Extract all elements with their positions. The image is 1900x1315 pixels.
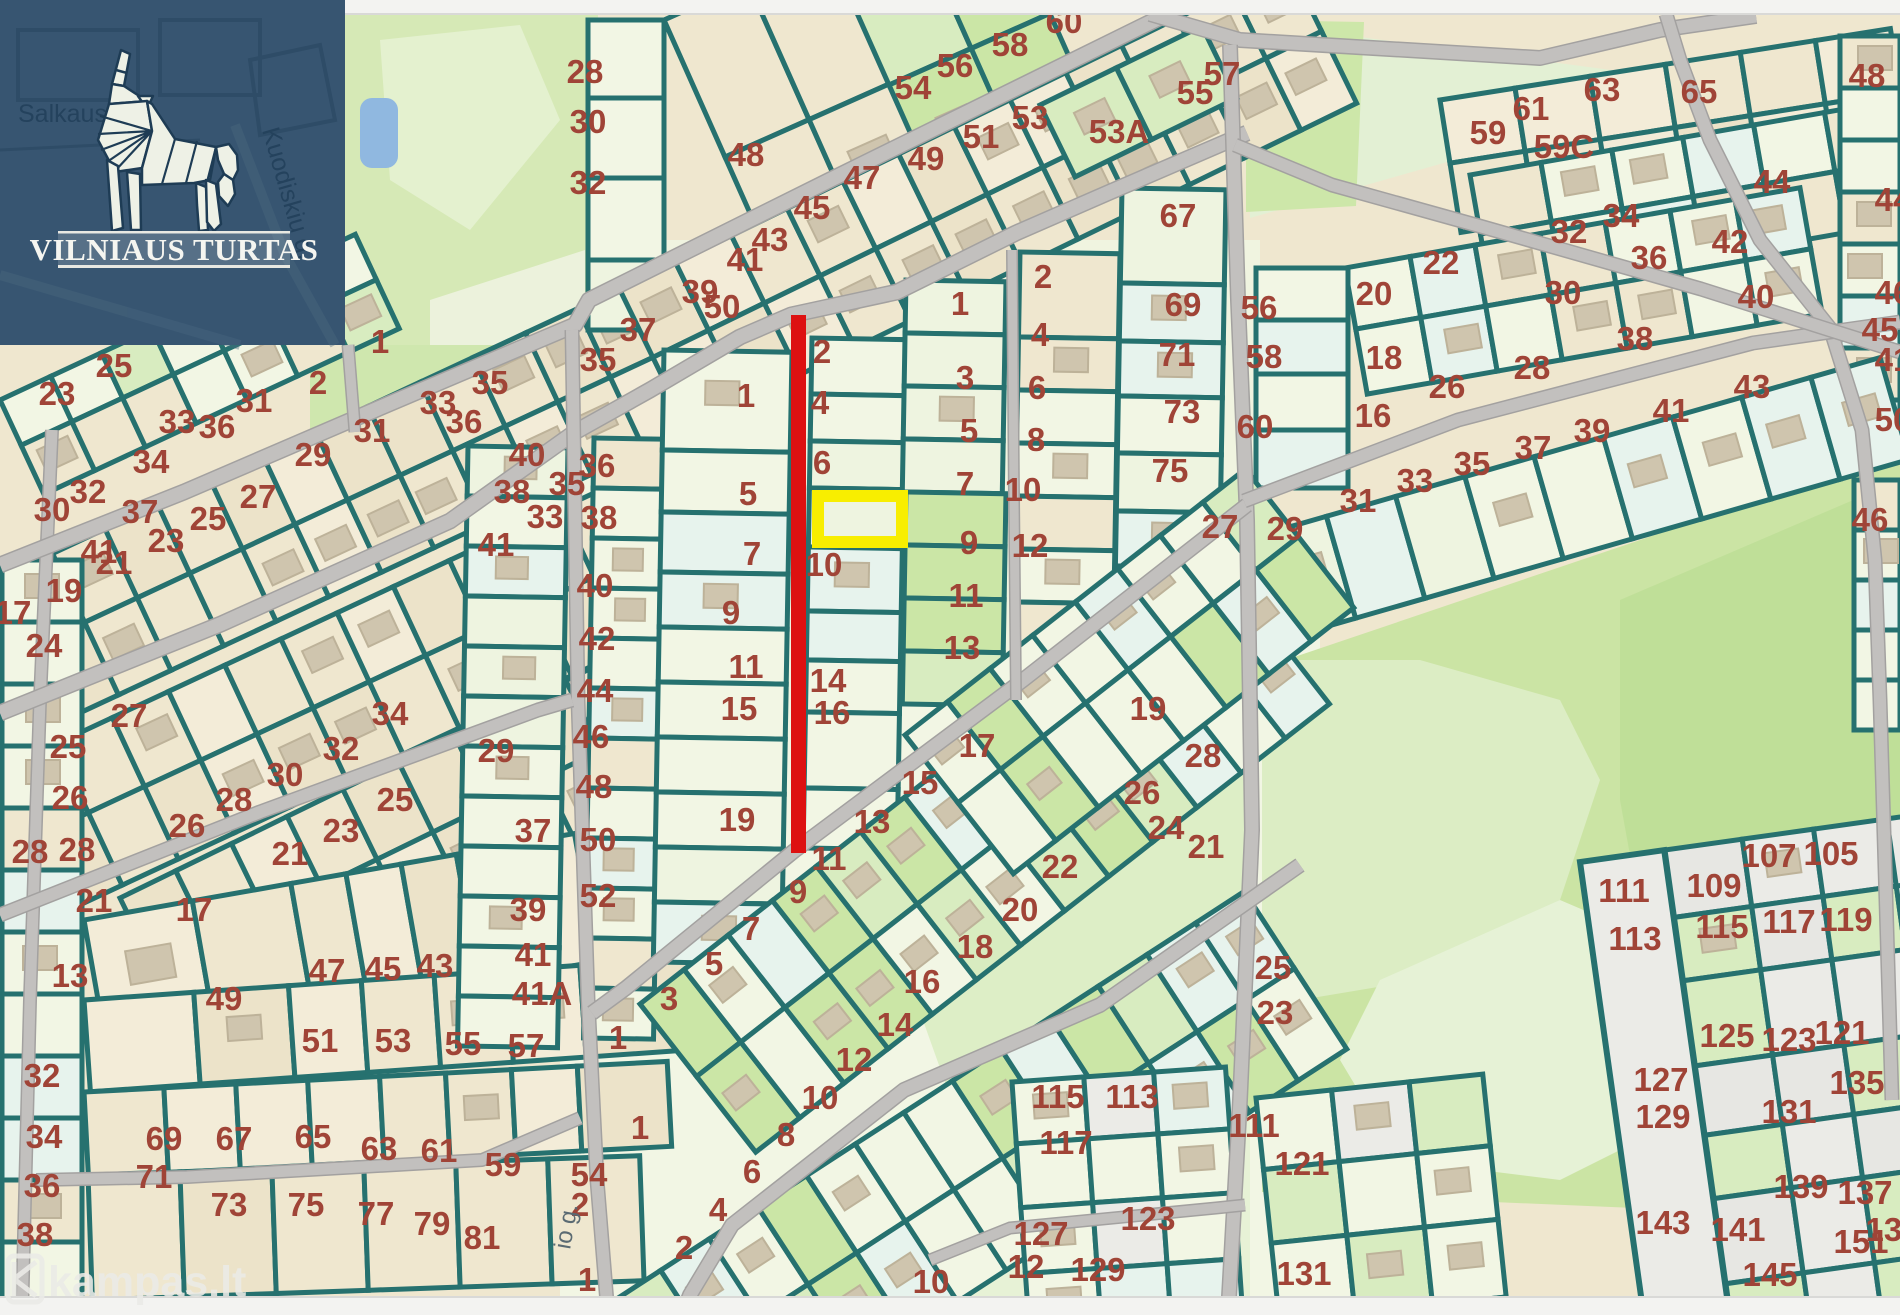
svg-text:137: 137 bbox=[1837, 1174, 1892, 1211]
svg-text:69: 69 bbox=[146, 1120, 183, 1157]
svg-text:111: 111 bbox=[1228, 1107, 1279, 1144]
svg-text:145: 145 bbox=[1742, 1256, 1797, 1293]
svg-text:135: 135 bbox=[1829, 1064, 1884, 1101]
svg-text:59: 59 bbox=[485, 1146, 522, 1183]
svg-text:36: 36 bbox=[1631, 239, 1668, 276]
svg-text:4: 4 bbox=[1031, 316, 1050, 353]
svg-text:25: 25 bbox=[96, 347, 133, 384]
svg-text:15: 15 bbox=[902, 764, 939, 801]
svg-text:46: 46 bbox=[1852, 501, 1889, 538]
svg-text:52: 52 bbox=[580, 877, 617, 914]
svg-text:105: 105 bbox=[1803, 835, 1858, 872]
svg-text:11: 11 bbox=[729, 648, 764, 685]
svg-text:34: 34 bbox=[26, 1118, 63, 1155]
svg-text:29: 29 bbox=[1267, 510, 1304, 547]
svg-text:28: 28 bbox=[1514, 349, 1551, 386]
svg-text:41: 41 bbox=[1653, 392, 1690, 429]
svg-text:58: 58 bbox=[992, 26, 1029, 63]
svg-text:47: 47 bbox=[309, 952, 346, 989]
svg-text:36: 36 bbox=[579, 447, 616, 484]
svg-text:44: 44 bbox=[1754, 163, 1791, 200]
svg-text:31: 31 bbox=[1340, 482, 1377, 519]
svg-text:17: 17 bbox=[959, 727, 996, 764]
svg-text:28: 28 bbox=[567, 53, 604, 90]
svg-text:51: 51 bbox=[302, 1022, 339, 1059]
svg-text:32: 32 bbox=[570, 164, 607, 201]
svg-text:41A: 41A bbox=[512, 975, 573, 1012]
svg-text:115: 115 bbox=[1031, 1078, 1084, 1115]
svg-text:25: 25 bbox=[1255, 949, 1292, 986]
svg-text:115: 115 bbox=[1695, 908, 1748, 945]
svg-text:11: 11 bbox=[949, 577, 984, 614]
svg-text:2: 2 bbox=[675, 1229, 693, 1266]
svg-text:19: 19 bbox=[719, 801, 756, 838]
svg-text:46: 46 bbox=[573, 718, 610, 755]
svg-text:30: 30 bbox=[570, 103, 607, 140]
svg-text:28: 28 bbox=[59, 831, 96, 868]
svg-text:12: 12 bbox=[836, 1041, 873, 1078]
svg-text:47: 47 bbox=[844, 159, 881, 196]
svg-text:2: 2 bbox=[309, 364, 327, 401]
svg-text:65: 65 bbox=[295, 1118, 332, 1155]
svg-text:67: 67 bbox=[1160, 197, 1197, 234]
svg-text:29: 29 bbox=[295, 436, 332, 473]
svg-text:40: 40 bbox=[1738, 278, 1775, 315]
svg-text:63: 63 bbox=[361, 1130, 398, 1167]
svg-text:8: 8 bbox=[777, 1116, 795, 1153]
svg-text:37: 37 bbox=[515, 812, 552, 849]
svg-text:35: 35 bbox=[472, 364, 509, 401]
svg-text:133: 133 bbox=[1865, 1211, 1900, 1248]
svg-text:50: 50 bbox=[580, 821, 617, 858]
svg-text:6: 6 bbox=[1028, 369, 1046, 406]
svg-text:127: 127 bbox=[1633, 1061, 1688, 1098]
svg-text:9: 9 bbox=[789, 873, 807, 910]
svg-text:35: 35 bbox=[1454, 445, 1491, 482]
svg-text:VILNIAUS TURTAS: VILNIAUS TURTAS bbox=[30, 232, 319, 267]
svg-text:10: 10 bbox=[913, 1263, 950, 1300]
svg-text:53A: 53A bbox=[1089, 113, 1150, 150]
svg-text:13: 13 bbox=[944, 629, 981, 666]
svg-text:33: 33 bbox=[1397, 462, 1434, 499]
svg-text:73: 73 bbox=[1164, 393, 1201, 430]
svg-text:42: 42 bbox=[579, 620, 616, 657]
svg-text:18: 18 bbox=[957, 928, 994, 965]
svg-text:73: 73 bbox=[211, 1186, 248, 1223]
svg-text:5: 5 bbox=[960, 412, 978, 449]
svg-text:57: 57 bbox=[508, 1027, 545, 1064]
svg-text:50: 50 bbox=[1875, 401, 1900, 438]
svg-text:43: 43 bbox=[1734, 368, 1771, 405]
svg-text:119: 119 bbox=[1819, 901, 1872, 938]
svg-text:40: 40 bbox=[509, 436, 546, 473]
svg-text:45: 45 bbox=[365, 950, 402, 987]
svg-text:41: 41 bbox=[515, 936, 552, 973]
svg-text:44: 44 bbox=[577, 672, 614, 709]
svg-text:9: 9 bbox=[722, 594, 740, 631]
svg-text:31: 31 bbox=[354, 412, 391, 449]
svg-text:17: 17 bbox=[176, 891, 213, 928]
svg-text:14: 14 bbox=[877, 1006, 914, 1043]
svg-text:38: 38 bbox=[1617, 320, 1654, 357]
svg-text:28: 28 bbox=[1185, 737, 1222, 774]
svg-text:16: 16 bbox=[1355, 397, 1392, 434]
svg-text:49: 49 bbox=[908, 140, 945, 177]
svg-text:23: 23 bbox=[148, 522, 185, 559]
svg-text:32: 32 bbox=[24, 1057, 61, 1094]
svg-text:1: 1 bbox=[609, 1019, 627, 1056]
svg-text:21: 21 bbox=[272, 835, 309, 872]
svg-text:27: 27 bbox=[111, 697, 148, 734]
svg-text:6: 6 bbox=[813, 444, 831, 481]
svg-text:8: 8 bbox=[1027, 421, 1045, 458]
svg-text:51: 51 bbox=[963, 118, 1000, 155]
svg-text:21: 21 bbox=[1188, 828, 1225, 865]
svg-text:36: 36 bbox=[199, 408, 236, 445]
svg-text:75: 75 bbox=[1152, 452, 1189, 489]
svg-text:7: 7 bbox=[743, 535, 761, 572]
svg-text:53: 53 bbox=[375, 1022, 412, 1059]
svg-text:113: 113 bbox=[1105, 1078, 1158, 1115]
svg-text:143: 143 bbox=[1635, 1204, 1690, 1241]
svg-text:121: 121 bbox=[1814, 1014, 1869, 1051]
svg-text:69: 69 bbox=[1165, 286, 1202, 323]
svg-text:56: 56 bbox=[1241, 289, 1278, 326]
svg-text:22: 22 bbox=[1423, 244, 1460, 281]
svg-text:34: 34 bbox=[133, 443, 170, 480]
svg-text:63: 63 bbox=[1584, 71, 1621, 108]
svg-text:48: 48 bbox=[576, 768, 613, 805]
svg-text:23: 23 bbox=[323, 812, 360, 849]
svg-text:75: 75 bbox=[288, 1186, 325, 1223]
svg-text:1: 1 bbox=[737, 377, 755, 414]
svg-text:41: 41 bbox=[478, 526, 515, 563]
svg-text:129: 129 bbox=[1070, 1251, 1125, 1288]
svg-text:58: 58 bbox=[1246, 338, 1283, 375]
svg-text:56: 56 bbox=[937, 47, 974, 84]
svg-text:20: 20 bbox=[1002, 891, 1039, 928]
svg-text:37: 37 bbox=[620, 311, 657, 348]
svg-text:30: 30 bbox=[1545, 274, 1582, 311]
svg-text:1: 1 bbox=[578, 1261, 596, 1298]
svg-text:125: 125 bbox=[1699, 1017, 1754, 1054]
svg-text:16: 16 bbox=[904, 963, 941, 1000]
svg-text:23: 23 bbox=[39, 375, 76, 412]
svg-text:39: 39 bbox=[510, 891, 547, 928]
svg-text:19: 19 bbox=[1130, 690, 1167, 727]
svg-text:21: 21 bbox=[76, 882, 113, 919]
svg-text:25: 25 bbox=[50, 728, 87, 765]
svg-text:9: 9 bbox=[960, 524, 978, 561]
svg-text:26: 26 bbox=[52, 779, 89, 816]
svg-text:36: 36 bbox=[24, 1167, 61, 1204]
svg-text:38: 38 bbox=[494, 473, 531, 510]
svg-text:10: 10 bbox=[802, 1079, 839, 1116]
svg-text:29: 29 bbox=[478, 732, 515, 769]
svg-text:3: 3 bbox=[956, 359, 974, 396]
svg-text:32: 32 bbox=[323, 730, 360, 767]
svg-text:13: 13 bbox=[854, 803, 891, 840]
svg-text:28: 28 bbox=[12, 833, 49, 870]
svg-text:7: 7 bbox=[742, 910, 760, 947]
svg-text:32: 32 bbox=[70, 473, 107, 510]
svg-text:121: 121 bbox=[1274, 1145, 1329, 1182]
svg-text:48: 48 bbox=[728, 136, 765, 173]
svg-text:27: 27 bbox=[1202, 508, 1239, 545]
svg-text:42: 42 bbox=[1712, 223, 1749, 260]
svg-text:2: 2 bbox=[813, 333, 831, 370]
svg-text:109: 109 bbox=[1686, 867, 1741, 904]
svg-text:22: 22 bbox=[1042, 848, 1079, 885]
svg-text:79: 79 bbox=[414, 1205, 451, 1242]
svg-text:25: 25 bbox=[190, 500, 227, 537]
svg-text:117: 117 bbox=[1039, 1124, 1092, 1161]
svg-text:54: 54 bbox=[895, 69, 932, 106]
svg-text:31: 31 bbox=[236, 382, 273, 419]
svg-text:48: 48 bbox=[1849, 57, 1886, 94]
svg-text:21: 21 bbox=[96, 544, 133, 581]
svg-text:24: 24 bbox=[26, 627, 63, 664]
svg-text:46: 46 bbox=[1875, 274, 1900, 311]
svg-text:39: 39 bbox=[1574, 412, 1611, 449]
svg-text:1: 1 bbox=[631, 1109, 649, 1146]
svg-text:44: 44 bbox=[1875, 181, 1900, 218]
svg-text:18: 18 bbox=[1366, 339, 1403, 376]
svg-text:4: 4 bbox=[709, 1191, 728, 1228]
svg-text:15: 15 bbox=[721, 690, 758, 727]
svg-text:65: 65 bbox=[1681, 73, 1718, 110]
svg-text:26: 26 bbox=[1124, 774, 1161, 811]
svg-text:35: 35 bbox=[580, 341, 617, 378]
svg-text:129: 129 bbox=[1635, 1098, 1690, 1135]
svg-text:131: 131 bbox=[1276, 1255, 1331, 1292]
svg-text:12: 12 bbox=[1008, 1248, 1045, 1285]
svg-text:81: 81 bbox=[464, 1219, 501, 1256]
svg-text:38: 38 bbox=[17, 1216, 54, 1253]
svg-text:11: 11 bbox=[812, 840, 847, 877]
svg-text:59: 59 bbox=[1470, 114, 1507, 151]
svg-text:1: 1 bbox=[951, 285, 969, 322]
svg-text:4: 4 bbox=[811, 384, 830, 421]
svg-text:25: 25 bbox=[377, 781, 414, 818]
svg-text:17: 17 bbox=[0, 594, 31, 631]
svg-text:107: 107 bbox=[1741, 837, 1796, 874]
svg-text:33: 33 bbox=[159, 403, 196, 440]
svg-text:139: 139 bbox=[1773, 1168, 1828, 1205]
svg-text:28: 28 bbox=[216, 781, 253, 818]
svg-text:67: 67 bbox=[216, 1120, 253, 1157]
svg-text:53: 53 bbox=[1012, 99, 1049, 136]
svg-text:12: 12 bbox=[1012, 527, 1049, 564]
svg-text:123: 123 bbox=[1120, 1200, 1175, 1237]
svg-text:57: 57 bbox=[1204, 55, 1241, 92]
svg-text:55: 55 bbox=[445, 1025, 482, 1062]
svg-text:36: 36 bbox=[446, 403, 483, 440]
svg-text:24: 24 bbox=[1148, 809, 1185, 846]
svg-text:123: 123 bbox=[1761, 1021, 1816, 1058]
svg-text:60: 60 bbox=[1237, 408, 1274, 445]
svg-text:40: 40 bbox=[577, 567, 614, 604]
svg-text:23: 23 bbox=[1257, 994, 1294, 1031]
svg-text:13: 13 bbox=[52, 957, 89, 994]
svg-text:61: 61 bbox=[1513, 90, 1550, 127]
svg-text:5: 5 bbox=[739, 475, 757, 512]
svg-text:71: 71 bbox=[136, 1158, 173, 1195]
svg-text:43: 43 bbox=[417, 947, 454, 984]
svg-text:30: 30 bbox=[267, 756, 304, 793]
svg-text:30: 30 bbox=[34, 491, 71, 528]
svg-text:61: 61 bbox=[421, 1132, 458, 1169]
svg-text:10: 10 bbox=[806, 546, 843, 583]
svg-text:39: 39 bbox=[682, 273, 719, 310]
svg-text:141: 141 bbox=[1710, 1211, 1765, 1248]
svg-text:1: 1 bbox=[371, 323, 389, 360]
svg-text:77: 77 bbox=[358, 1195, 395, 1232]
svg-text:41: 41 bbox=[727, 241, 764, 278]
svg-text:117: 117 bbox=[1762, 903, 1815, 940]
svg-text:kampas.lt: kampas.lt bbox=[48, 1258, 246, 1306]
svg-text:41: 41 bbox=[1875, 341, 1900, 378]
svg-text:32: 32 bbox=[1551, 213, 1588, 250]
svg-text:16: 16 bbox=[814, 694, 851, 731]
svg-text:37: 37 bbox=[1515, 429, 1552, 466]
svg-text:6: 6 bbox=[743, 1153, 761, 1190]
svg-text:5: 5 bbox=[705, 945, 723, 982]
svg-text:26: 26 bbox=[169, 807, 206, 844]
svg-text:34: 34 bbox=[1603, 197, 1640, 234]
svg-text:127: 127 bbox=[1013, 1215, 1068, 1252]
svg-text:27: 27 bbox=[240, 478, 277, 515]
svg-text:49: 49 bbox=[206, 980, 243, 1017]
svg-text:3: 3 bbox=[660, 980, 678, 1017]
svg-text:113: 113 bbox=[1608, 920, 1661, 957]
svg-text:111: 111 bbox=[1598, 872, 1649, 909]
svg-text:7: 7 bbox=[956, 465, 974, 502]
svg-text:26: 26 bbox=[1429, 368, 1466, 405]
svg-text:59C: 59C bbox=[1534, 128, 1595, 165]
svg-text:38: 38 bbox=[581, 499, 618, 536]
svg-text:19: 19 bbox=[46, 572, 83, 609]
svg-text:2: 2 bbox=[1034, 258, 1052, 295]
svg-text:131: 131 bbox=[1761, 1093, 1816, 1130]
svg-text:10: 10 bbox=[1005, 471, 1042, 508]
svg-text:20: 20 bbox=[1356, 275, 1393, 312]
svg-text:71: 71 bbox=[1159, 336, 1196, 373]
svg-text:33: 33 bbox=[527, 498, 564, 535]
svg-text:34: 34 bbox=[372, 695, 409, 732]
svg-text:45: 45 bbox=[794, 189, 831, 226]
